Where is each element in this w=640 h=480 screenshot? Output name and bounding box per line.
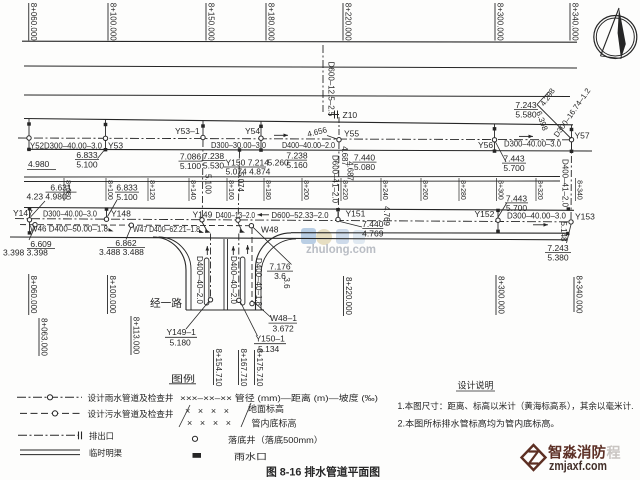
svg-text:D600–52.33–2.0: D600–52.33–2.0: [272, 211, 329, 220]
svg-text:Y150–1: Y150–1: [256, 333, 286, 343]
svg-text:Y53–1: Y53–1: [175, 126, 200, 136]
svg-text:4.687: 4.687: [345, 161, 354, 181]
svg-text:5.080: 5.080: [354, 162, 376, 172]
svg-text:程: 程: [607, 445, 621, 461]
svg-text:8+167.710: 8+167.710: [239, 348, 248, 387]
svg-text:5.100: 5.100: [204, 174, 213, 195]
svg-text:Y55: Y55: [344, 129, 359, 139]
svg-text:临时明渠: 临时明渠: [89, 447, 122, 458]
svg-text:2.本图所标排水管标高均为管内底标高。: 2.本图所标排水管标高均为管内底标高。: [398, 418, 560, 429]
svg-text:7.440: 7.440: [362, 219, 384, 229]
svg-text:8+154.710: 8+154.710: [214, 348, 223, 387]
svg-text:8+150.000: 8+150.000: [206, 3, 215, 42]
svg-text:8+260: 8+260: [421, 180, 428, 200]
svg-text:地面标高: 地面标高: [248, 403, 284, 414]
svg-text:经一路: 经一路: [150, 297, 183, 310]
svg-text:D300–40.00–3.0: D300–40.00–3.0: [43, 209, 97, 218]
svg-text:Y53: Y53: [108, 141, 123, 151]
svg-text:7.176: 7.176: [269, 262, 291, 272]
svg-text:7.238: 7.238: [203, 151, 225, 161]
svg-text:Y153: Y153: [575, 211, 595, 221]
svg-text:4.769: 4.769: [382, 206, 391, 227]
svg-text:D400–40–1.8: D400–40–1.8: [254, 258, 263, 307]
svg-text:7.086: 7.086: [180, 152, 202, 162]
svg-text:落底井（落底500mm）: 落底井（落底500mm）: [228, 434, 323, 445]
svg-text:3.398 3.398: 3.398 3.398: [3, 247, 48, 257]
svg-text:8+320: 8+320: [536, 180, 543, 200]
svg-text:7.440: 7.440: [354, 153, 376, 163]
svg-text:8+280: 8+280: [459, 180, 466, 200]
svg-text:Z10: Z10: [343, 110, 358, 120]
svg-text:Y54: Y54: [245, 126, 260, 136]
svg-text:5.380: 5.380: [547, 253, 569, 263]
svg-text:Y148: Y148: [111, 209, 131, 219]
svg-text:5.160: 5.160: [286, 160, 308, 170]
svg-text:3.6: 3.6: [282, 277, 291, 289]
svg-text:8+140: 8+140: [189, 180, 196, 200]
svg-text:8+220: 8+220: [341, 180, 348, 200]
svg-text:6.833: 6.833: [116, 183, 138, 193]
svg-text:zmjaxf.com: zmjaxf.com: [549, 459, 607, 473]
svg-text:8+300.000: 8+300.000: [496, 276, 505, 315]
svg-text:×××–××–×× 管径 (mm)—距离 (m)—坡度 (‰: ×××–××–×× 管径 (mm)—距离 (m)—坡度 (‰): [180, 392, 378, 403]
svg-text:5.148: 5.148: [559, 221, 568, 242]
svg-text:Y149–1: Y149–1: [167, 327, 197, 337]
svg-text:8+175.710: 8+175.710: [255, 348, 264, 387]
svg-text:8+100.000: 8+100.000: [108, 275, 117, 314]
svg-text:8+100: 8+100: [106, 180, 113, 200]
svg-text:4.23 4.980: 4.23 4.980: [27, 192, 67, 202]
svg-text:8+340.000: 8+340.000: [574, 275, 583, 314]
svg-text:5.100: 5.100: [76, 160, 98, 170]
svg-text:8+060.000: 8+060.000: [29, 3, 38, 42]
svg-text:8+300.000: 8+300.000: [495, 3, 504, 42]
svg-text:3.488 3.488: 3.488 3.488: [99, 247, 144, 257]
svg-text:4.980: 4.980: [28, 159, 50, 169]
svg-text:1.本图尺寸：距离、标高以米计（黄海标高系），其余以毫米计.: 1.本图尺寸：距离、标高以米计（黄海标高系），其余以毫米计.: [398, 400, 634, 411]
svg-text:D400–40–2.0: D400–40–2.0: [229, 256, 238, 305]
svg-text:8+160: 8+160: [227, 180, 234, 200]
svg-text:7.443: 7.443: [503, 154, 525, 164]
svg-text:雨水口: 雨水口: [234, 451, 267, 462]
svg-text:5.074: 5.074: [236, 172, 245, 193]
svg-text:W47 D400–62.21–1.8: W47 D400–62.21–1.8: [133, 225, 200, 234]
svg-text:D400–40.00–2.0: D400–40.00–2.0: [282, 141, 335, 150]
svg-text:7.243: 7.243: [515, 100, 537, 110]
svg-text:5.100: 5.100: [116, 192, 138, 202]
svg-text:5.580: 5.580: [515, 110, 537, 120]
svg-text:设计雨水管道及检查井: 设计雨水管道及检查井: [88, 392, 174, 403]
svg-text:设计说明: 设计说明: [458, 380, 494, 391]
svg-text:8+220.000: 8+220.000: [344, 277, 353, 316]
svg-text:8+113.000: 8+113.000: [131, 317, 140, 355]
svg-text:W48: W48: [261, 225, 279, 235]
svg-text:设计污水管道及检查井: 设计污水管道及检查井: [88, 408, 174, 419]
svg-text:W48–1: W48–1: [270, 313, 297, 323]
svg-text:D400–13–2.0: D400–13–2.0: [216, 211, 256, 220]
svg-text:7.243: 7.243: [547, 243, 569, 253]
svg-text:6.833: 6.833: [76, 150, 98, 160]
svg-text:Y152: Y152: [475, 209, 495, 219]
svg-text:管内底标高: 管内底标高: [252, 417, 297, 428]
svg-text:8+200: 8+200: [302, 180, 309, 200]
svg-text:W46 D400–50.00–1.8: W46 D400–50.00–1.8: [30, 225, 108, 234]
svg-text:8+063.000: 8+063.000: [39, 318, 48, 357]
svg-text:D600–12.5–2.5: D600–12.5–2.5: [326, 62, 335, 117]
svg-text:D400–40–2.0: D400–40–2.0: [195, 256, 204, 305]
svg-text:4.769: 4.769: [362, 228, 384, 238]
svg-text:8+240: 8+240: [381, 180, 388, 200]
svg-text:8+100.000: 8+100.000: [108, 3, 117, 42]
svg-text:图 8-16 排水管道平面图: 图 8-16 排水管道平面图: [266, 465, 380, 479]
svg-text:D300–40.00–3.0: D300–40.00–3.0: [504, 139, 561, 148]
svg-text:5.530: 5.530: [203, 161, 225, 171]
svg-text:排出口: 排出口: [89, 430, 114, 441]
svg-text:5.100: 5.100: [180, 161, 202, 171]
svg-text:8+300: 8+300: [497, 180, 504, 200]
svg-text:Y147: Y147: [13, 208, 33, 218]
svg-text:8+180.000: 8+180.000: [266, 3, 275, 42]
svg-text:D400–41–2.0: D400–41–2.0: [560, 159, 569, 208]
svg-text:5.180: 5.180: [170, 338, 192, 348]
svg-text:8+060.000: 8+060.000: [29, 275, 38, 314]
svg-text:5.700: 5.700: [503, 163, 525, 173]
svg-text:5.700: 5.700: [506, 203, 528, 213]
svg-text:Y149: Y149: [193, 210, 213, 220]
svg-text:8+340: 8+340: [576, 180, 583, 200]
svg-text:Y57: Y57: [575, 131, 590, 141]
svg-text:8+220.000: 8+220.000: [343, 3, 352, 42]
svg-text:图例: 图例: [171, 373, 195, 384]
svg-text:3.672: 3.672: [273, 323, 295, 333]
svg-text:8+120: 8+120: [148, 180, 155, 200]
svg-text:8+340.000: 8+340.000: [570, 3, 579, 42]
svg-text:Y151: Y151: [346, 208, 366, 218]
svg-text:Y56: Y56: [478, 140, 493, 150]
svg-text:zhulong.com: zhulong.com: [306, 242, 376, 256]
svg-text:8+180: 8+180: [264, 180, 271, 200]
svg-text:Y52D300–40.00–3.0: Y52D300–40.00–3.0: [30, 141, 102, 150]
svg-text:7.238: 7.238: [286, 151, 308, 161]
svg-text:7.443: 7.443: [506, 193, 528, 203]
svg-text:D600–41–2.0: D600–41–2.0: [330, 155, 339, 204]
svg-text:5.074 4.874: 5.074 4.874: [226, 167, 271, 177]
